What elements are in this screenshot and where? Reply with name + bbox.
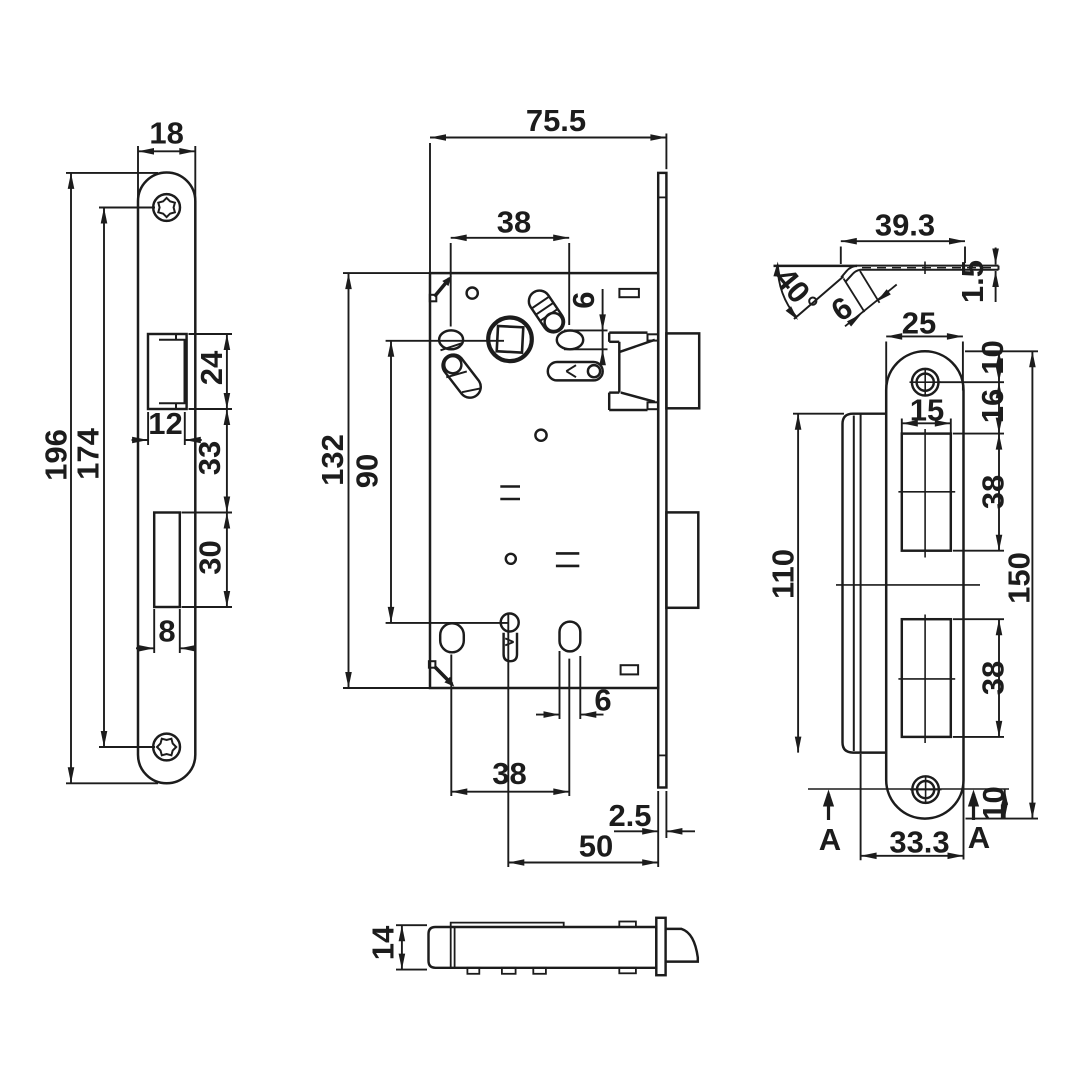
svg-text:18: 18 [149,116,183,151]
svg-text:1.5: 1.5 [955,260,990,303]
svg-text:A: A [968,820,990,855]
svg-text:10: 10 [976,786,1011,820]
svg-text:39.3: 39.3 [875,208,935,243]
svg-text:132: 132 [315,434,350,486]
svg-text:2.5: 2.5 [608,798,651,833]
svg-text:196: 196 [39,429,74,481]
svg-text:6: 6 [594,683,611,718]
svg-text:174: 174 [71,427,106,479]
svg-text:15: 15 [910,393,944,428]
svg-text:90: 90 [349,454,384,488]
svg-text:A: A [819,822,841,857]
svg-text:6: 6 [566,291,601,308]
svg-text:75.5: 75.5 [526,103,586,138]
svg-text:12: 12 [148,406,182,441]
svg-text:38: 38 [976,475,1011,509]
svg-text:10: 10 [975,340,1010,374]
svg-text:33.3: 33.3 [889,825,949,860]
svg-text:30: 30 [193,540,228,574]
svg-text:38: 38 [976,661,1011,695]
svg-text:38: 38 [492,756,526,791]
svg-text:25: 25 [902,306,936,341]
svg-text:14: 14 [366,925,401,960]
svg-text:16: 16 [975,389,1010,423]
svg-text:24: 24 [194,350,229,385]
svg-text:50: 50 [579,829,613,864]
svg-text:110: 110 [765,549,800,599]
svg-text:38: 38 [497,205,531,240]
svg-text:150: 150 [1002,552,1037,604]
svg-text:33: 33 [192,441,227,475]
svg-text:8: 8 [158,614,175,649]
